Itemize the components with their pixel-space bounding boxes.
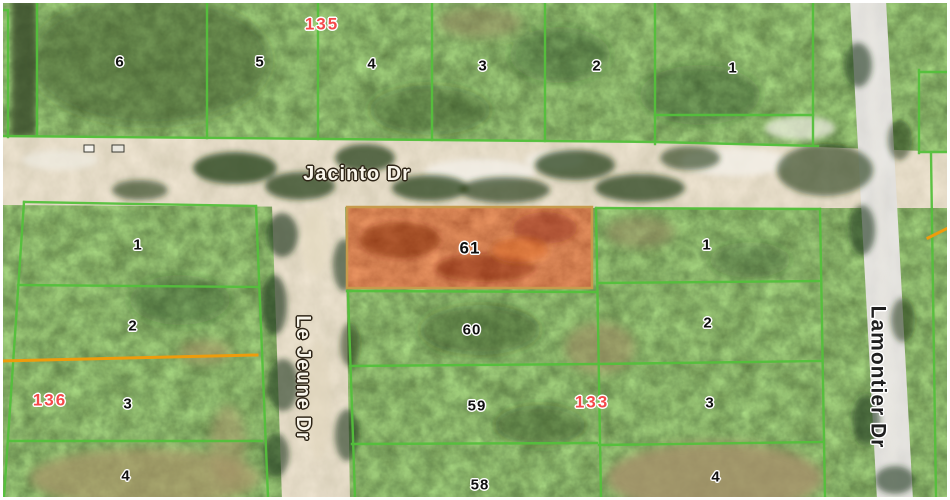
street-label-jacinto-dr: Jacinto Dr bbox=[303, 164, 411, 184]
parcel-label-center-59: 59 bbox=[468, 399, 487, 414]
parcel-label-west-4: 4 bbox=[121, 469, 130, 484]
parcel-label-west-3: 3 bbox=[123, 397, 132, 412]
parcel-label-north-5: 5 bbox=[255, 55, 264, 70]
parcel-label-north-2: 2 bbox=[592, 59, 601, 74]
parcel-label-west-1: 1 bbox=[133, 238, 142, 253]
street-label-lamontier-dr: Lamontier Dr bbox=[868, 306, 889, 449]
parcel-label-center-58: 58 bbox=[471, 478, 490, 493]
parcel-label-center-61-highlighted: 61 bbox=[460, 240, 481, 257]
parcel-label-east-4: 4 bbox=[711, 470, 720, 485]
block-number-136: 136 bbox=[33, 392, 67, 409]
parcel-label-east-2: 2 bbox=[703, 316, 712, 331]
parcel-label-east-3: 3 bbox=[705, 396, 714, 411]
parcel-label-north-4: 4 bbox=[367, 57, 376, 72]
parcel-label-center-60: 60 bbox=[463, 323, 482, 338]
block-number-133: 133 bbox=[575, 394, 609, 411]
hedgerow-strip bbox=[12, 0, 36, 136]
aerial-map: Jacinto Dr Le Jeune Dr Lamontier Dr 135 … bbox=[0, 0, 950, 500]
block-number-135: 135 bbox=[305, 16, 339, 33]
street-label-le-jeune-dr: Le Jeune Dr bbox=[293, 315, 313, 440]
parcel-label-east-1: 1 bbox=[702, 238, 711, 253]
parcel-label-north-3: 3 bbox=[478, 59, 487, 74]
parcel-label-west-2: 2 bbox=[128, 319, 137, 334]
parcel-label-north-6: 6 bbox=[115, 55, 124, 70]
parcel-label-north-1: 1 bbox=[728, 61, 737, 76]
